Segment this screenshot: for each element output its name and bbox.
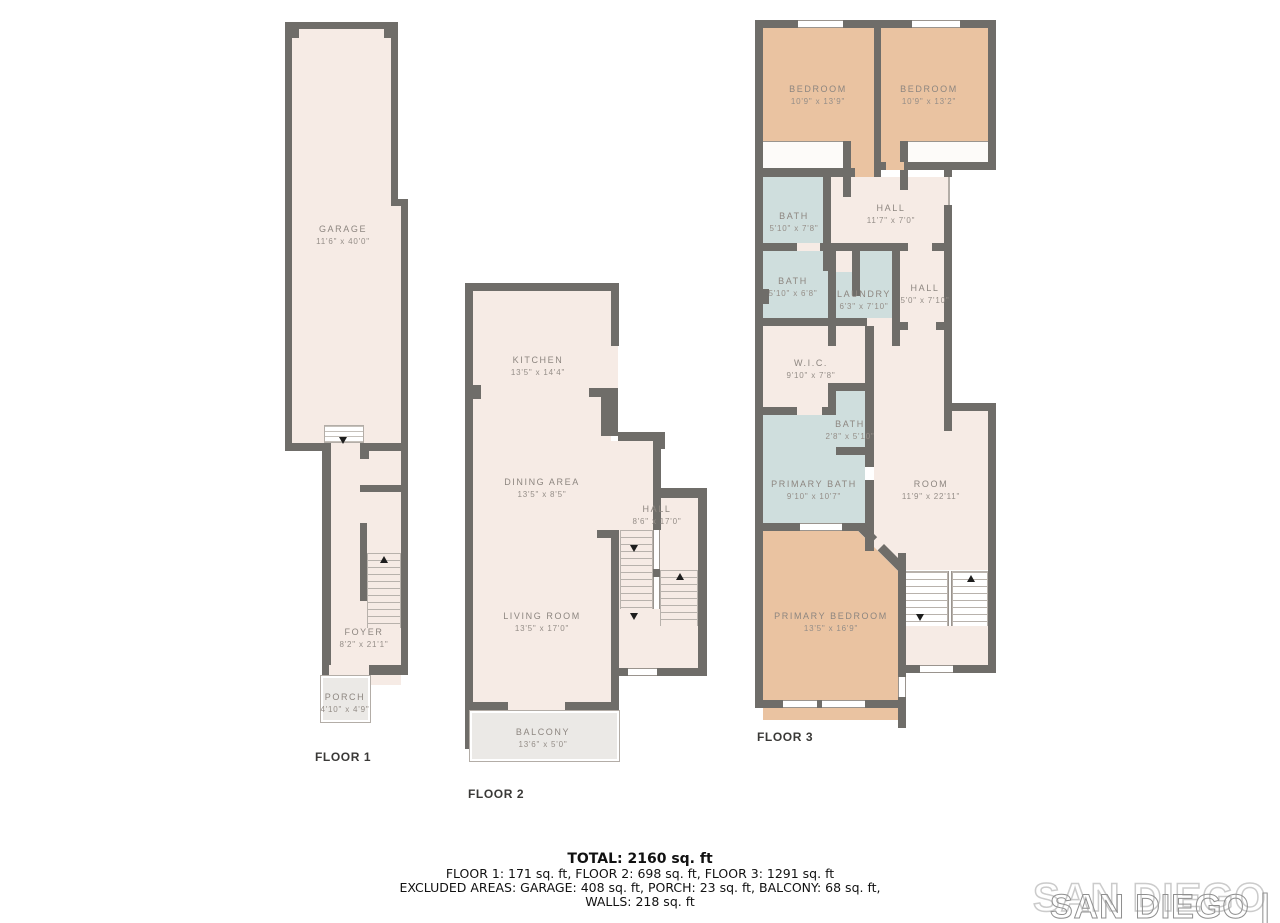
room-dims: 4'10" x 4'9" — [305, 705, 385, 715]
room-name: PRIMARY BATH — [754, 479, 874, 490]
window — [798, 20, 843, 28]
window — [912, 20, 960, 28]
window — [920, 665, 953, 673]
wall — [364, 443, 408, 451]
window — [783, 700, 817, 708]
down-arrow-icon — [339, 437, 347, 444]
room-name: HALL — [831, 203, 951, 214]
mls-watermark: SAN DIEGO | MLS — [1050, 888, 1280, 923]
floor1-plan: GARAGE 11'6" x 40'0" FOYER 8'2" x 21'1" … — [285, 20, 425, 790]
wall — [401, 199, 408, 675]
room-label-kitchen: KITCHEN 13'5" x 14'4" — [488, 355, 588, 378]
wall — [465, 283, 619, 291]
room-label-living: LIVING ROOM 13'5" x 17'0" — [492, 611, 592, 634]
wall — [601, 397, 618, 436]
wall — [944, 170, 952, 177]
wall — [944, 205, 952, 431]
room-label-primary-bedroom: PRIMARY BEDROOM 13'5" x 16'9" — [761, 611, 901, 634]
room-dims: 13'5" x 17'0" — [492, 624, 592, 634]
wall — [360, 443, 369, 459]
room-dims: 8'6" x 17'0" — [627, 517, 687, 527]
room-name: HALL — [627, 504, 687, 515]
room-label-primary-bath: PRIMARY BATH 9'10" x 10'7" — [754, 479, 874, 502]
wall — [285, 443, 324, 451]
room-dims: 10'9" x 13'9" — [758, 97, 878, 107]
staircase-down — [620, 530, 653, 609]
room-dims: 11'9" x 22'11" — [871, 492, 991, 502]
floorplan-page: GARAGE 11'6" x 40'0" FOYER 8'2" x 21'1" … — [0, 0, 1280, 923]
room-dims: 13'6" x 5'0" — [493, 740, 593, 750]
room-name: BATH — [810, 419, 890, 430]
room-dims: 9'10" x 10'7" — [754, 492, 874, 502]
wall — [653, 569, 660, 577]
floor3-plan: BEDROOM 10'9" x 13'9" BEDROOM 10'9" x 13… — [755, 20, 1010, 755]
room-label-hall-1: HALL 11'7" x 7'0" — [831, 203, 951, 226]
floor2-label: FLOOR 2 — [468, 787, 524, 801]
wall-pillar — [465, 385, 481, 399]
room-label-porch: PORCH 4'10" x 4'9" — [305, 692, 385, 715]
wall — [465, 283, 473, 749]
closet — [908, 141, 988, 162]
room-name: ROOM — [871, 479, 991, 490]
room-name: HALL — [885, 283, 965, 294]
wall — [988, 403, 996, 673]
room-name: BATH — [754, 211, 834, 222]
room-label-bath-1: BATH 5'10" x 7'8" — [754, 211, 834, 234]
door-opening — [797, 407, 822, 415]
room-dims: 8'2" x 21'1" — [319, 640, 409, 650]
wall — [755, 407, 836, 415]
room-label-foyer: FOYER 8'2" x 21'1" — [319, 627, 409, 650]
wall — [360, 485, 408, 492]
room-name: BEDROOM — [758, 84, 878, 95]
wall — [865, 326, 874, 467]
door-opening — [886, 162, 904, 170]
room-label-wic: W.I.C. 9'10" x 7'8" — [751, 358, 871, 381]
room-name: PRIMARY BEDROOM — [761, 611, 901, 622]
floor2-plan: KITCHEN 13'5" x 14'4" DINING AREA 13'5" … — [465, 283, 725, 813]
room-dims: 5'10" x 7'8" — [754, 224, 834, 234]
wall — [611, 530, 619, 710]
room-name: DINING AREA — [492, 477, 592, 488]
door-opening — [797, 243, 820, 251]
wall — [360, 523, 367, 601]
down-arrow-icon — [630, 613, 638, 620]
balcony-door-opening — [508, 702, 565, 710]
wall — [611, 283, 619, 346]
room-dims: 9'10" x 7'8" — [751, 371, 871, 381]
room-name: KITCHEN — [488, 355, 588, 366]
window — [822, 700, 865, 708]
room-label-dining: DINING AREA 13'5" x 8'5" — [492, 477, 592, 500]
door-opening — [329, 665, 369, 675]
closet — [763, 141, 843, 168]
wall — [618, 432, 665, 441]
wall — [391, 22, 398, 206]
room-name: BALCONY — [493, 727, 593, 738]
room-name: BATH — [753, 276, 833, 287]
room-dims: 13'5" x 14'4" — [488, 368, 588, 378]
up-arrow-icon — [967, 575, 975, 582]
floor3-label: FLOOR 3 — [757, 730, 813, 744]
room-label-bath-3: BATH 2'8" x 5'10" — [810, 419, 890, 442]
garage-floor — [391, 206, 401, 443]
wall — [611, 668, 707, 676]
up-arrow-icon — [676, 573, 684, 580]
room-dims: 13'5" x 16'9" — [761, 624, 901, 634]
staircase — [367, 553, 401, 628]
room-label-bedroom-2: BEDROOM 10'9" x 13'2" — [869, 84, 989, 107]
room-name: PORCH — [305, 692, 385, 703]
total-area-text: TOTAL: 2160 sq. ft — [0, 852, 1280, 867]
room-label-balcony: BALCONY 13'6" x 5'0" — [493, 727, 593, 750]
room-dims: 11'7" x 7'0" — [831, 216, 951, 226]
room-label-garage: GARAGE 11'6" x 40'0" — [298, 224, 388, 247]
door-opening — [855, 168, 874, 177]
up-arrow-icon — [380, 556, 388, 563]
staircase-down — [905, 571, 948, 626]
door-opening — [908, 243, 932, 251]
down-arrow-icon — [630, 545, 638, 552]
room-dims: 2'8" x 5'10" — [810, 432, 890, 442]
window — [628, 668, 657, 676]
door-opening — [867, 318, 892, 326]
room-label-hall: HALL 8'6" x 17'0" — [627, 504, 687, 527]
window — [898, 677, 906, 697]
wall — [755, 168, 855, 177]
room-name: BEDROOM — [869, 84, 989, 95]
window — [800, 523, 842, 531]
room-dims: 5'0" x 7'10" — [885, 296, 965, 306]
floor1-label: FLOOR 1 — [315, 750, 371, 764]
down-arrow-icon — [916, 614, 924, 621]
room-name: LIVING ROOM — [492, 611, 592, 622]
room-name: GARAGE — [298, 224, 388, 235]
wall — [828, 383, 836, 415]
room-dims: 10'9" x 13'2" — [869, 97, 989, 107]
landing-floor — [905, 626, 988, 665]
door-opening — [908, 322, 936, 330]
room-label-bedroom-1: BEDROOM 10'9" x 13'9" — [758, 84, 878, 107]
wall — [322, 443, 331, 695]
wall — [285, 22, 292, 451]
room-label-room: ROOM 11'9" x 22'11" — [871, 479, 991, 502]
room-dims: 13'5" x 8'5" — [492, 490, 592, 500]
room-dims: 11'6" x 40'0" — [298, 237, 388, 247]
wall — [698, 488, 707, 676]
wall — [865, 447, 874, 458]
room-name: W.I.C. — [751, 358, 871, 369]
wall — [285, 22, 398, 29]
room-name: FOYER — [319, 627, 409, 638]
room-label-hall-2: HALL 5'0" x 7'10" — [885, 283, 965, 306]
wall — [589, 388, 618, 397]
opening-line — [948, 177, 950, 205]
wall — [988, 20, 996, 170]
